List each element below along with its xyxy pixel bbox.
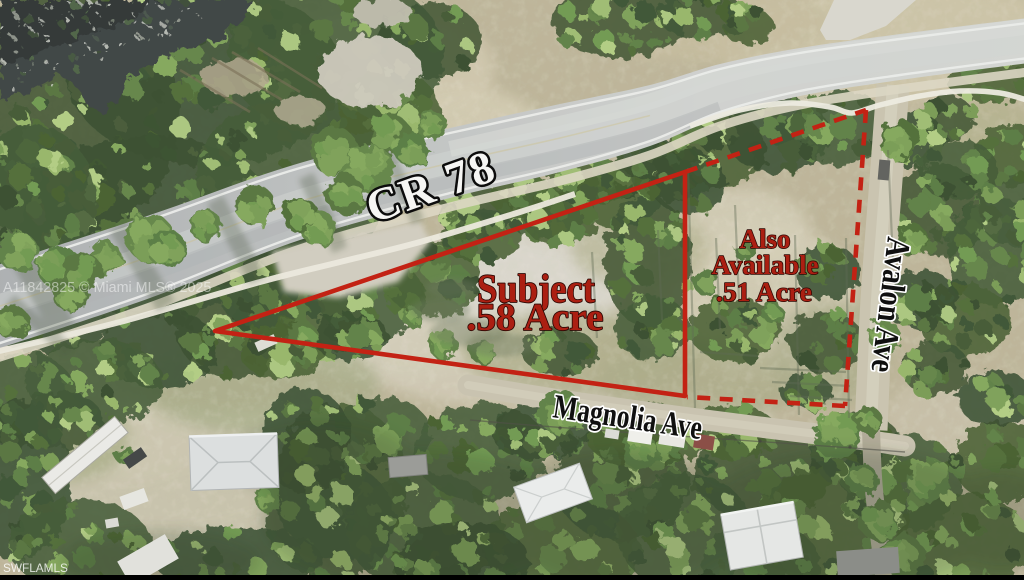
svg-text:.51 Acre: .51 Acre — [716, 277, 812, 307]
svg-text:.58 Acre: .58 Acre — [467, 296, 604, 339]
svg-text:A11842825 © Miami MLS® 2025: A11842825 © Miami MLS® 2025 — [3, 280, 211, 296]
svg-text:Available: Available — [712, 250, 819, 280]
svg-text:SWFLAMLS: SWFLAMLS — [3, 561, 68, 575]
